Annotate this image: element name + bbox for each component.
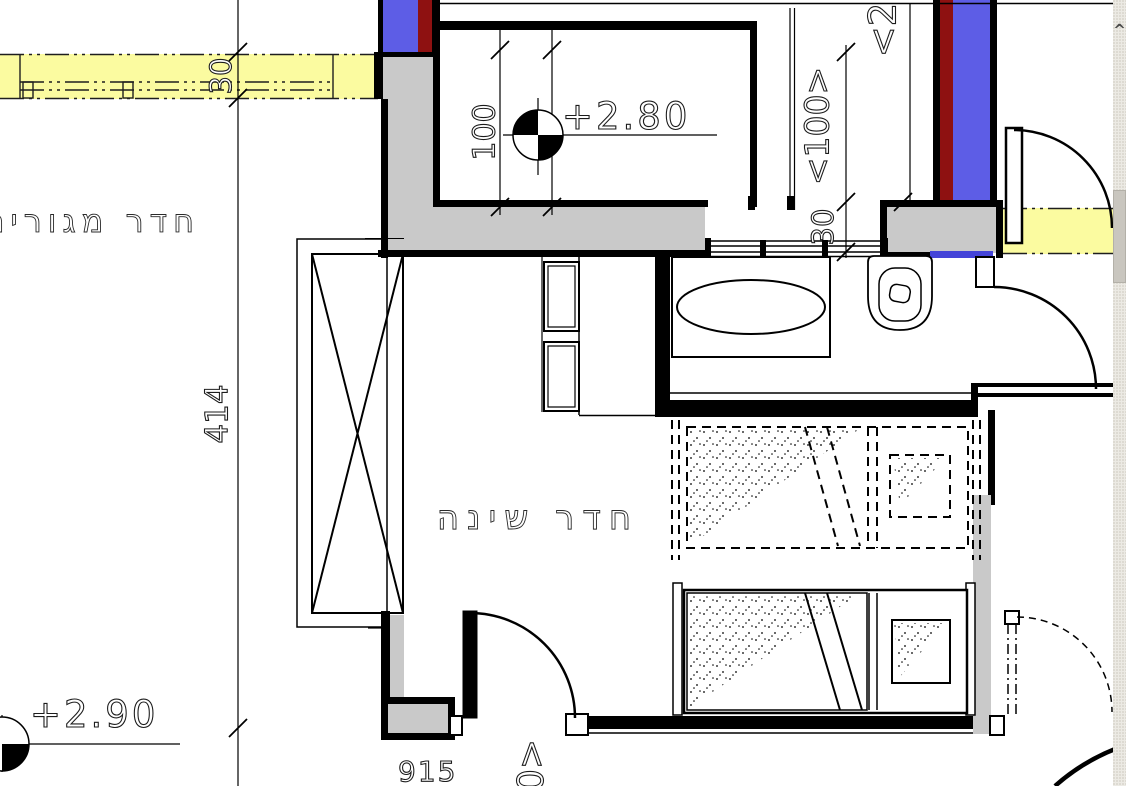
dim-label-414: 414 bbox=[202, 384, 235, 443]
dim-label-915: 915 bbox=[398, 757, 457, 786]
mattress-stipple bbox=[690, 430, 858, 545]
wall-gray-right-block bbox=[880, 200, 1003, 258]
door-jamb-dashed-top bbox=[1005, 611, 1019, 624]
wall-red-top-left bbox=[418, 0, 432, 52]
wall-right-colored bbox=[933, 0, 997, 205]
elevation-symbol-290 bbox=[0, 717, 29, 771]
wall-red-right bbox=[940, 0, 953, 205]
vanity-counter bbox=[672, 257, 830, 357]
scrollbar[interactable]: ^ bbox=[1113, 0, 1126, 786]
yellow-band-left bbox=[0, 54, 378, 99]
dim-label-100: 100 bbox=[469, 103, 501, 160]
bedroom-bottom-wall bbox=[566, 714, 1004, 735]
door-jamb-bathroom bbox=[976, 257, 994, 287]
door-leaf-bedroom bbox=[463, 611, 477, 718]
door-arc-bathroom bbox=[994, 287, 1096, 389]
wall-blue-top-left bbox=[383, 0, 418, 52]
chevron-up-icon: ^ bbox=[1113, 21, 1126, 39]
dim-label-30-left: 30 bbox=[206, 58, 236, 95]
scrollbar-up-button[interactable]: ^ bbox=[1113, 18, 1126, 42]
shelf-cabinet bbox=[542, 255, 579, 412]
pillow-stipple bbox=[893, 458, 946, 505]
scrollbar-thumb[interactable] bbox=[1113, 190, 1126, 283]
tag-label-100: <100> bbox=[801, 67, 836, 185]
dim-label-30-right: 30 bbox=[808, 209, 838, 246]
door-arc-bedroom bbox=[470, 613, 575, 718]
floor-plan-canvas[interactable]: חדר מגורים חדר שינה +2.80 +2.90 915 30 4… bbox=[0, 0, 1126, 786]
room-label-living: חדר מגורים bbox=[2, 205, 200, 239]
door-leaf-top-right bbox=[1006, 128, 1022, 243]
elevation-label-280: +2.80 bbox=[562, 98, 690, 137]
elevation-symbol-280 bbox=[513, 110, 563, 160]
wall-blue-right bbox=[953, 0, 990, 205]
door-arc-dashed bbox=[1017, 617, 1112, 712]
tag-label-2-partial: <2 bbox=[865, 3, 904, 58]
room-label-bedroom: חדר שינה bbox=[428, 501, 648, 537]
wall-stub-bottom-left bbox=[368, 611, 462, 740]
sink-oval bbox=[677, 280, 825, 334]
closet bbox=[297, 239, 404, 628]
tag-label-90-partial: <90> bbox=[513, 739, 551, 786]
toilet bbox=[868, 256, 932, 330]
elevation-label-290: +2.90 bbox=[30, 696, 158, 735]
window-sill bbox=[705, 238, 888, 257]
